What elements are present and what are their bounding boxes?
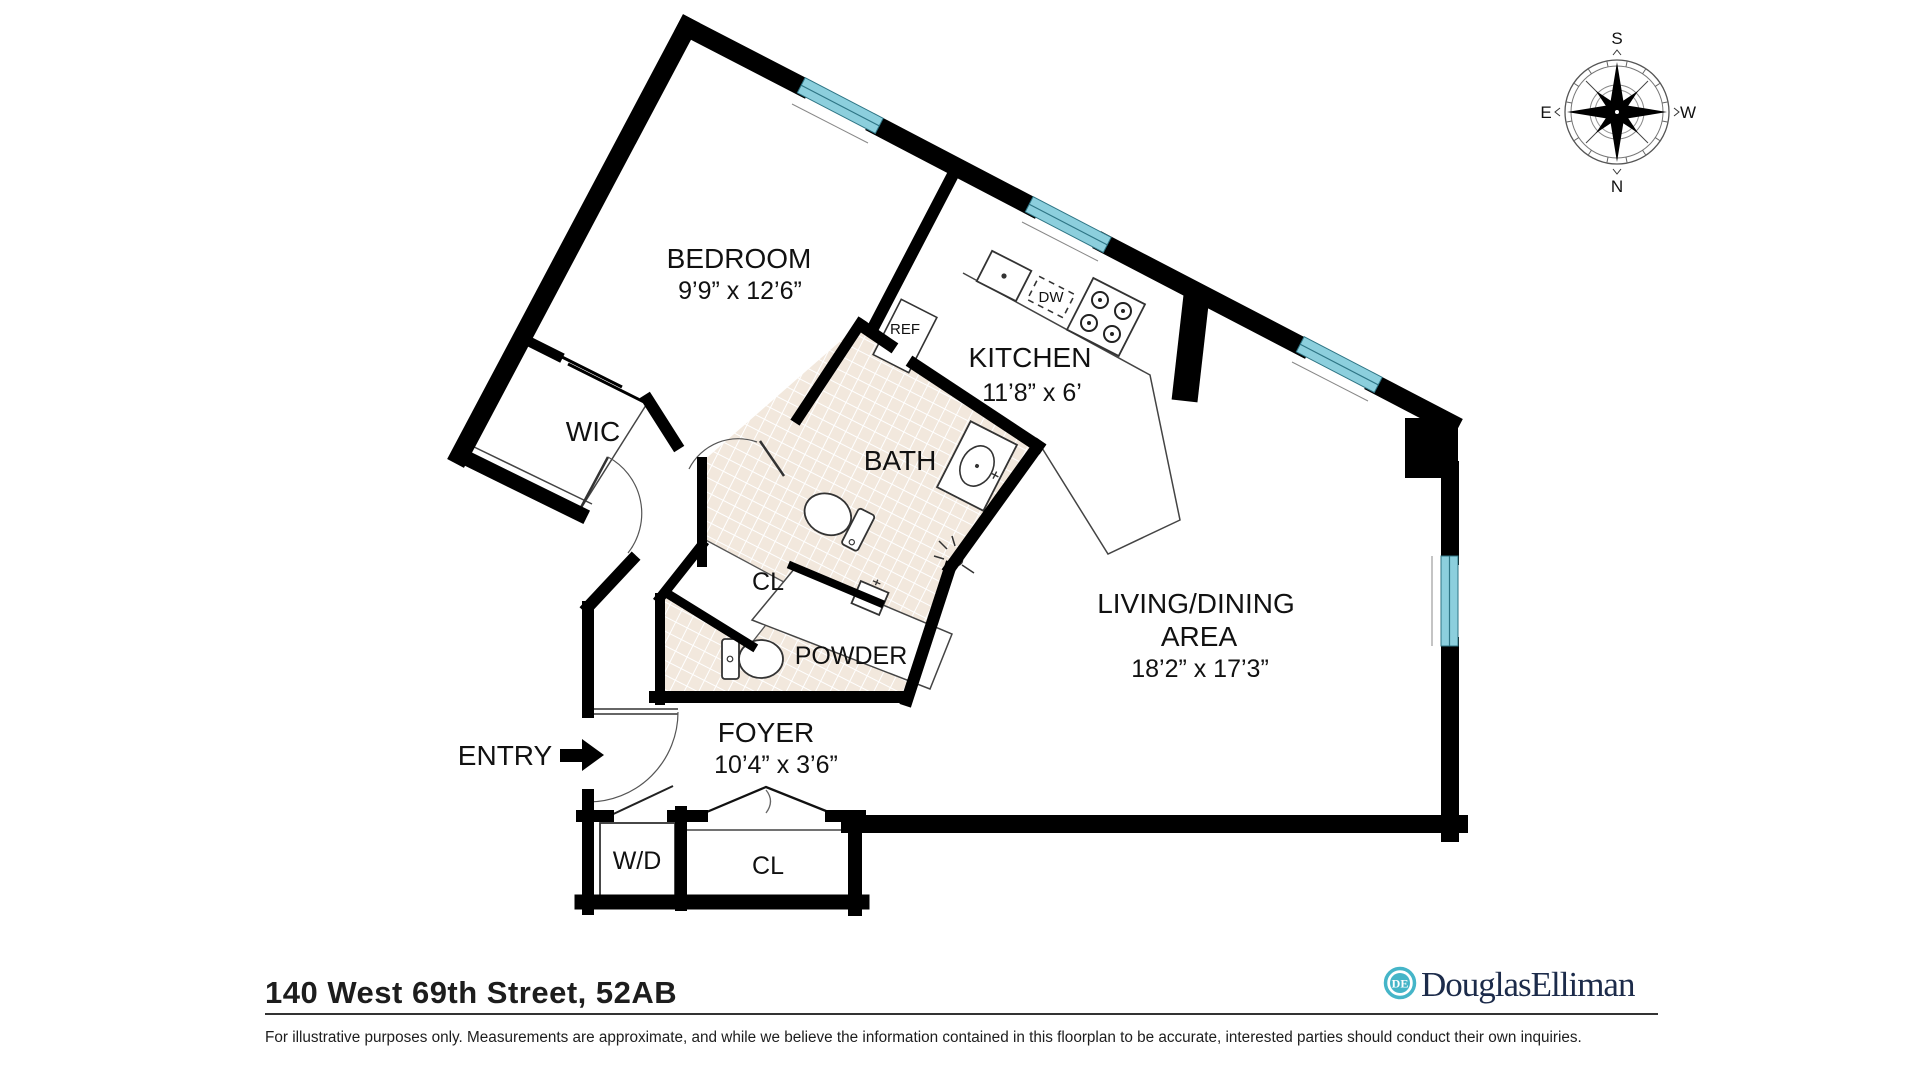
bedroom-door-leaf: [578, 457, 608, 513]
foyer-label: FOYER: [718, 717, 814, 748]
bedroom-dims: 9’9” x 12’6”: [678, 277, 802, 305]
powder-label: POWDER: [795, 642, 908, 670]
bedroom-window: [797, 78, 883, 134]
wic-slider-door-2: [568, 364, 650, 405]
entry-arrow-icon: [560, 739, 604, 771]
hall-closet-label: CL: [752, 568, 784, 596]
address-title: 140 West 69th Street, 52AB: [265, 975, 677, 1010]
brand-wordmark: DouglasElliman: [1421, 965, 1635, 1004]
bedroom-label: BEDROOM: [667, 243, 812, 274]
kitchen-label: KITCHEN: [969, 342, 1092, 373]
foyer-dims: 10’4” x 3’6”: [714, 751, 838, 779]
living-dining-label: LIVING/DINING: [1097, 588, 1295, 619]
living-dining-label-2: AREA: [1161, 621, 1238, 652]
footer: 140 West 69th Street, 52AB For illustrat…: [265, 965, 1658, 1046]
bedroom-door-swing: [608, 457, 642, 553]
living-window-right: [1441, 556, 1458, 646]
wd-door-leaf: [607, 786, 673, 817]
disclaimer-text: For illustrative purposes only. Measurem…: [265, 1029, 1582, 1046]
living-dining-dims: 18’2” x 17’3”: [1131, 655, 1269, 683]
floorplan-page: BEDROOM 9’9” x 12’6” WIC KITCHEN 11’8” x…: [0, 0, 1920, 1080]
bath-label: BATH: [864, 445, 937, 476]
compass-rose: S N E W: [1540, 29, 1696, 196]
entry-label: ENTRY: [458, 740, 553, 771]
compass-s: S: [1611, 29, 1622, 48]
kitchen-dims: 11’8” x 6’: [982, 379, 1082, 407]
wic-label: WIC: [566, 416, 620, 447]
foyer-closet-label: CL: [752, 852, 784, 880]
dw-label: DW: [1039, 289, 1065, 306]
compass-e: E: [1540, 103, 1551, 122]
living-window-upper: [1296, 337, 1382, 393]
wd-label: W/D: [613, 847, 662, 875]
brand-monogram: DE: [1392, 977, 1409, 991]
douglas-elliman-logo: DE DouglasElliman: [1386, 965, 1635, 1004]
compass-n: N: [1611, 177, 1623, 196]
foyer-closet-bifold-hinge: [766, 790, 771, 813]
compass-w: W: [1680, 103, 1696, 122]
kitchen-window: [1025, 197, 1111, 253]
kitchen-sink-drain: [1001, 273, 1006, 278]
floorplan-canvas: BEDROOM 9’9” x 12’6” WIC KITCHEN 11’8” x…: [0, 0, 1920, 1080]
ref-label: REF: [890, 321, 920, 338]
